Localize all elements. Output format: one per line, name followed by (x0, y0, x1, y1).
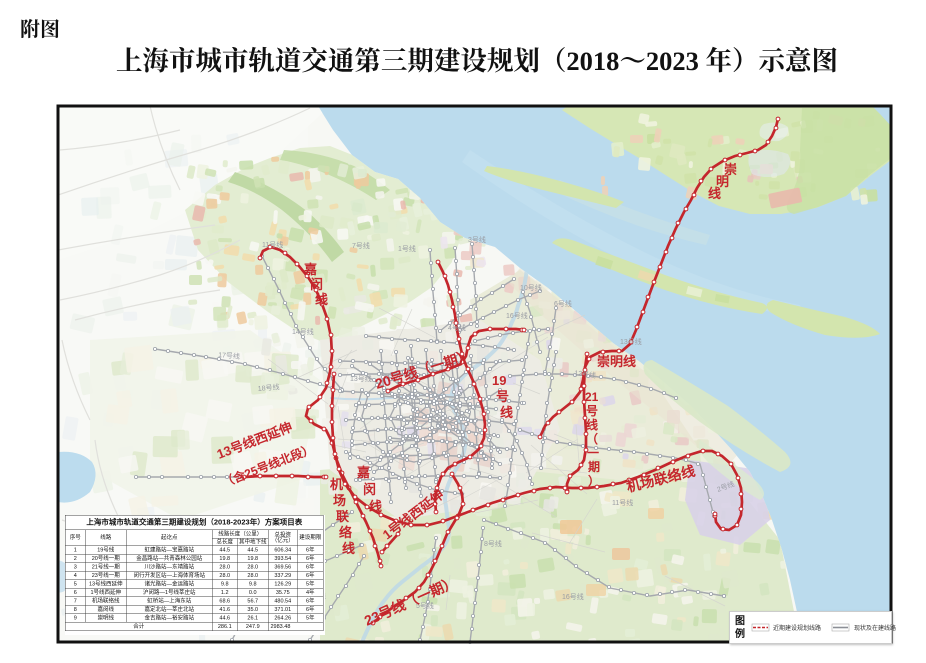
svg-text:6号线: 6号线 (554, 299, 572, 308)
svg-text:近期建设规划线路: 近期建设规划线路 (773, 624, 821, 632)
svg-text:1号线: 1号线 (398, 244, 416, 253)
svg-text:8号线: 8号线 (484, 539, 502, 548)
svg-text:16号线: 16号线 (506, 311, 528, 320)
svg-text:11号线: 11号线 (262, 240, 283, 249)
svg-text:16号线: 16号线 (562, 592, 584, 601)
svg-text:14号线: 14号线 (292, 327, 314, 336)
svg-text:21号线（一期）: 21号线（一期） (585, 390, 600, 488)
svg-text:13号线: 13号线 (350, 374, 372, 383)
svg-text:3号线: 3号线 (468, 235, 486, 244)
svg-text:11号线: 11号线 (612, 498, 633, 507)
svg-text:崇明线: 崇明线 (597, 354, 636, 369)
svg-text:7号线: 7号线 (352, 241, 370, 250)
svg-text:现状及在建线路: 现状及在建线路 (854, 624, 896, 632)
svg-text:13号线: 13号线 (620, 337, 642, 346)
svg-text:10号线: 10号线 (520, 283, 542, 292)
svg-text:4号线: 4号线 (448, 323, 466, 332)
